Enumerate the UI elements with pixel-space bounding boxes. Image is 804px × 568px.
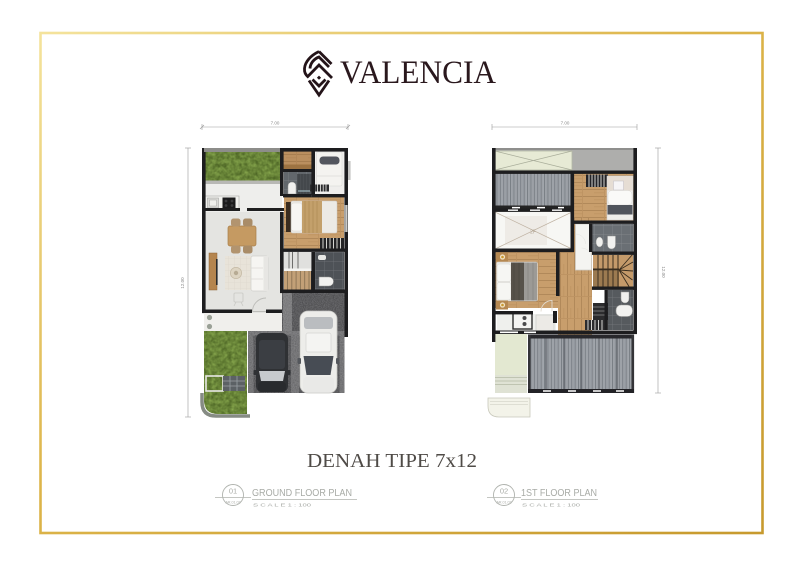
svg-text:VALENCIA: VALENCIA <box>340 55 496 91</box>
svg-text:2F: 2F <box>530 230 536 236</box>
svg-text:AR.01.02: AR.01.02 <box>497 501 512 505</box>
svg-text:S C A L E 1 : 100: S C A L E 1 : 100 <box>253 503 312 508</box>
svg-text:S C A L E 1 : 100: S C A L E 1 : 100 <box>522 503 581 508</box>
svg-text:7.00: 7.00 <box>271 121 280 126</box>
svg-text:1ST FLOOR PLAN: 1ST FLOOR PLAN <box>521 488 597 499</box>
svg-text:12.00: 12.00 <box>180 277 185 289</box>
svg-text:7.00: 7.00 <box>561 121 570 126</box>
svg-text:12.00: 12.00 <box>661 266 666 278</box>
svg-text:01: 01 <box>229 487 237 496</box>
svg-text:02: 02 <box>500 487 508 496</box>
svg-text:DENAH TIPE 7x12: DENAH TIPE 7x12 <box>307 450 477 472</box>
svg-text:AR.01.02: AR.01.02 <box>226 501 241 505</box>
svg-text:GROUND FLOOR PLAN: GROUND FLOOR PLAN <box>252 488 352 499</box>
